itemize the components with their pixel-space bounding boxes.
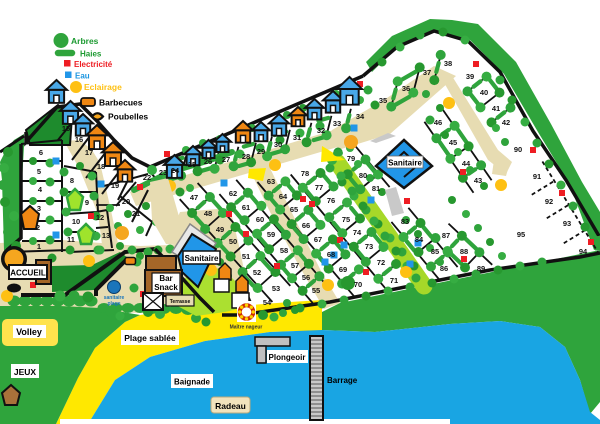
svg-text:35: 35	[379, 96, 387, 105]
svg-text:3: 3	[37, 204, 41, 213]
svg-text:Radeau: Radeau	[215, 401, 246, 411]
svg-text:84: 84	[415, 235, 424, 244]
svg-text:86: 86	[440, 264, 448, 273]
svg-text:54: 54	[263, 298, 272, 307]
svg-text:49: 49	[216, 225, 224, 234]
svg-text:51: 51	[242, 252, 250, 261]
svg-text:27: 27	[222, 155, 230, 164]
svg-text:89: 89	[477, 264, 485, 273]
svg-text:70: 70	[354, 280, 362, 289]
svg-text:24: 24	[171, 166, 180, 175]
svg-text:37: 37	[423, 68, 431, 77]
svg-text:55: 55	[312, 286, 320, 295]
svg-text:77: 77	[315, 183, 323, 192]
svg-text:Haies: Haies	[80, 50, 102, 59]
svg-text:63: 63	[267, 177, 275, 186]
svg-text:19: 19	[111, 181, 119, 190]
svg-text:53: 53	[272, 284, 280, 293]
svg-text:34: 34	[356, 112, 365, 121]
svg-text:Baignade: Baignade	[174, 378, 211, 387]
svg-text:83: 83	[401, 217, 409, 226]
svg-text:85: 85	[431, 247, 439, 256]
svg-text:62: 62	[229, 189, 237, 198]
svg-text:79: 79	[347, 154, 355, 163]
svg-text:60: 60	[256, 215, 264, 224]
svg-text:71: 71	[390, 276, 398, 285]
svg-text:68: 68	[327, 250, 335, 259]
svg-text:plage: plage	[107, 301, 120, 307]
svg-text:12: 12	[96, 213, 104, 222]
svg-text:73: 73	[365, 242, 373, 251]
svg-text:26: 26	[204, 157, 212, 166]
svg-text:29: 29	[257, 147, 265, 156]
svg-text:8: 8	[70, 176, 74, 185]
svg-text:41: 41	[492, 104, 500, 113]
svg-text:11: 11	[67, 235, 75, 244]
svg-text:23: 23	[159, 168, 167, 177]
svg-text:67: 67	[314, 235, 322, 244]
svg-text:Arbres: Arbres	[71, 36, 99, 46]
svg-text:28: 28	[242, 152, 250, 161]
svg-text:39: 39	[466, 72, 474, 81]
svg-text:Plage sablée: Plage sablée	[124, 333, 176, 343]
svg-text:Bar: Bar	[159, 274, 172, 283]
svg-text:21: 21	[132, 209, 140, 218]
svg-text:44: 44	[462, 159, 471, 168]
svg-text:56: 56	[302, 273, 310, 282]
svg-text:Sanitaire: Sanitaire	[185, 254, 219, 263]
svg-text:78: 78	[301, 169, 309, 178]
svg-text:50: 50	[229, 237, 237, 246]
svg-text:47: 47	[190, 193, 198, 202]
svg-text:33: 33	[333, 119, 341, 128]
svg-text:80: 80	[359, 171, 367, 180]
svg-text:18: 18	[97, 162, 105, 171]
svg-text:20: 20	[122, 197, 130, 206]
svg-text:57: 57	[291, 261, 299, 270]
svg-text:31: 31	[293, 133, 301, 142]
svg-text:Snack: Snack	[154, 283, 178, 292]
svg-text:30: 30	[274, 140, 282, 149]
svg-text:Sanitaire: Sanitaire	[388, 159, 422, 168]
svg-text:65: 65	[290, 205, 298, 214]
svg-text:61: 61	[242, 203, 250, 212]
svg-text:1: 1	[37, 242, 41, 251]
svg-text:46: 46	[434, 118, 442, 127]
svg-text:94: 94	[579, 247, 588, 256]
svg-text:90: 90	[514, 145, 522, 154]
svg-text:38: 38	[444, 59, 452, 68]
svg-text:69: 69	[339, 265, 347, 274]
svg-text:45: 45	[449, 138, 457, 147]
svg-text:74: 74	[353, 228, 362, 237]
svg-text:Eau: Eau	[75, 72, 90, 81]
svg-text:75: 75	[342, 215, 350, 224]
svg-text:6: 6	[39, 148, 43, 157]
svg-text:Terrasse: Terrasse	[170, 299, 191, 305]
svg-text:93: 93	[563, 219, 571, 228]
svg-text:66: 66	[302, 221, 310, 230]
svg-text:Plongeoir: Plongeoir	[269, 353, 306, 362]
svg-text:40: 40	[480, 88, 488, 97]
svg-text:ACCUEIL: ACCUEIL	[10, 269, 46, 278]
svg-text:9: 9	[85, 198, 89, 207]
svg-text:48: 48	[204, 209, 212, 218]
svg-text:Electricité: Electricité	[74, 60, 113, 69]
svg-text:16: 16	[75, 135, 83, 144]
svg-text:25: 25	[188, 160, 196, 169]
svg-text:JEUX: JEUX	[14, 367, 37, 377]
svg-text:17: 17	[85, 148, 93, 157]
svg-text:36: 36	[402, 84, 410, 93]
svg-text:87: 87	[442, 231, 450, 240]
svg-text:13: 13	[102, 231, 110, 240]
svg-text:Eclairage: Eclairage	[84, 82, 122, 92]
svg-text:42: 42	[502, 118, 510, 127]
svg-text:64: 64	[279, 192, 288, 201]
svg-text:76: 76	[327, 196, 335, 205]
svg-text:88: 88	[460, 247, 468, 256]
svg-text:10: 10	[72, 217, 80, 226]
svg-text:15: 15	[62, 124, 70, 133]
svg-text:59: 59	[267, 230, 275, 239]
svg-text:95: 95	[517, 230, 525, 239]
svg-text:81: 81	[372, 184, 380, 193]
svg-text:72: 72	[377, 258, 385, 267]
svg-text:52: 52	[253, 268, 261, 277]
svg-text:22: 22	[143, 173, 151, 182]
svg-text:Barrage: Barrage	[327, 376, 358, 385]
svg-text:Poubelles: Poubelles	[108, 112, 148, 122]
svg-text:92: 92	[545, 197, 553, 206]
svg-text:Barbecues: Barbecues	[99, 98, 143, 108]
svg-text:5: 5	[37, 167, 41, 176]
svg-text:58: 58	[280, 246, 288, 255]
svg-text:91: 91	[533, 172, 541, 181]
svg-text:2: 2	[36, 223, 40, 232]
svg-text:32: 32	[317, 126, 325, 135]
svg-text:43: 43	[474, 176, 482, 185]
svg-text:Maître nageur: Maître nageur	[230, 325, 263, 331]
svg-text:Volley: Volley	[16, 327, 42, 337]
